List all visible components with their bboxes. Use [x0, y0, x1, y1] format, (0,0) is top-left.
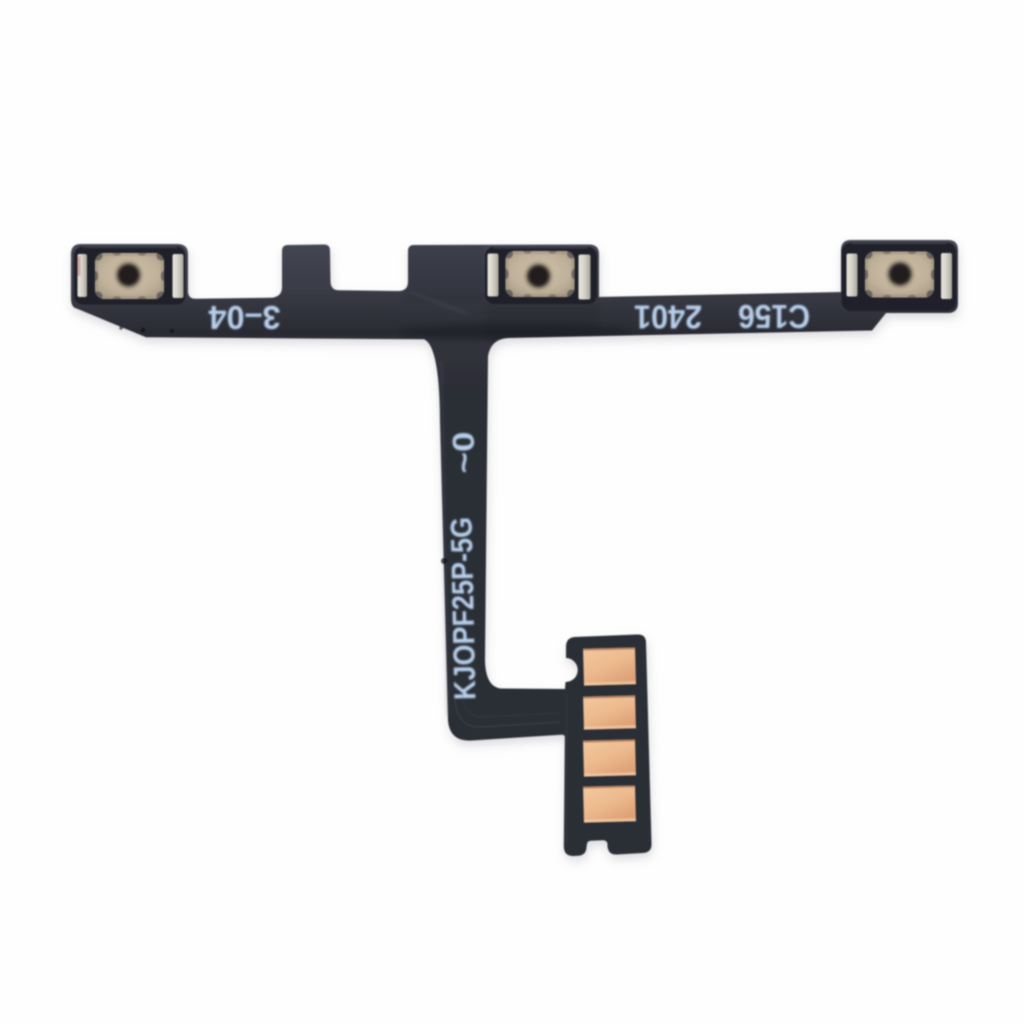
- svg-text:~0: ~0: [446, 431, 482, 474]
- svg-text:C156: C156: [738, 298, 810, 335]
- svg-text:KJOPF25P-5G: KJOPF25P-5G: [444, 517, 483, 701]
- svg-text:2401: 2401: [634, 299, 702, 336]
- svg-text:3–04: 3–04: [208, 299, 281, 336]
